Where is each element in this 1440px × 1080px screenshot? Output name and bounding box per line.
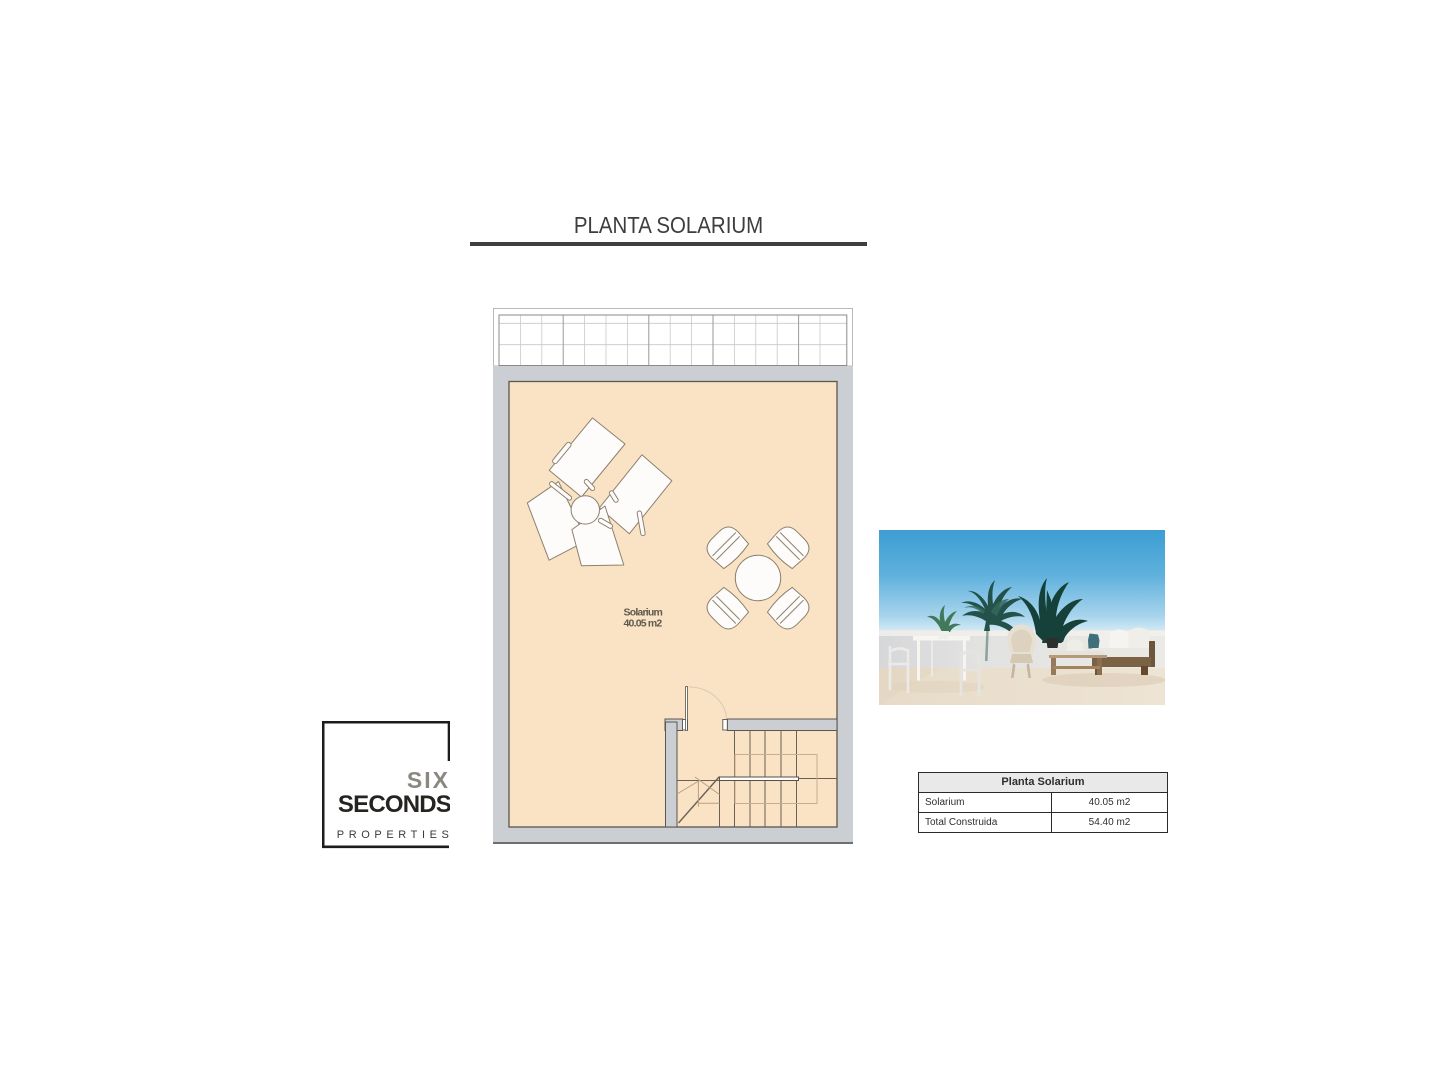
svg-text:SECONDS: SECONDS (338, 791, 450, 818)
svg-text:40.05 m2: 40.05 m2 (624, 617, 663, 629)
svg-text:PROPERTIES: PROPERTIES (337, 829, 450, 841)
svg-text:SIX: SIX (407, 767, 450, 793)
